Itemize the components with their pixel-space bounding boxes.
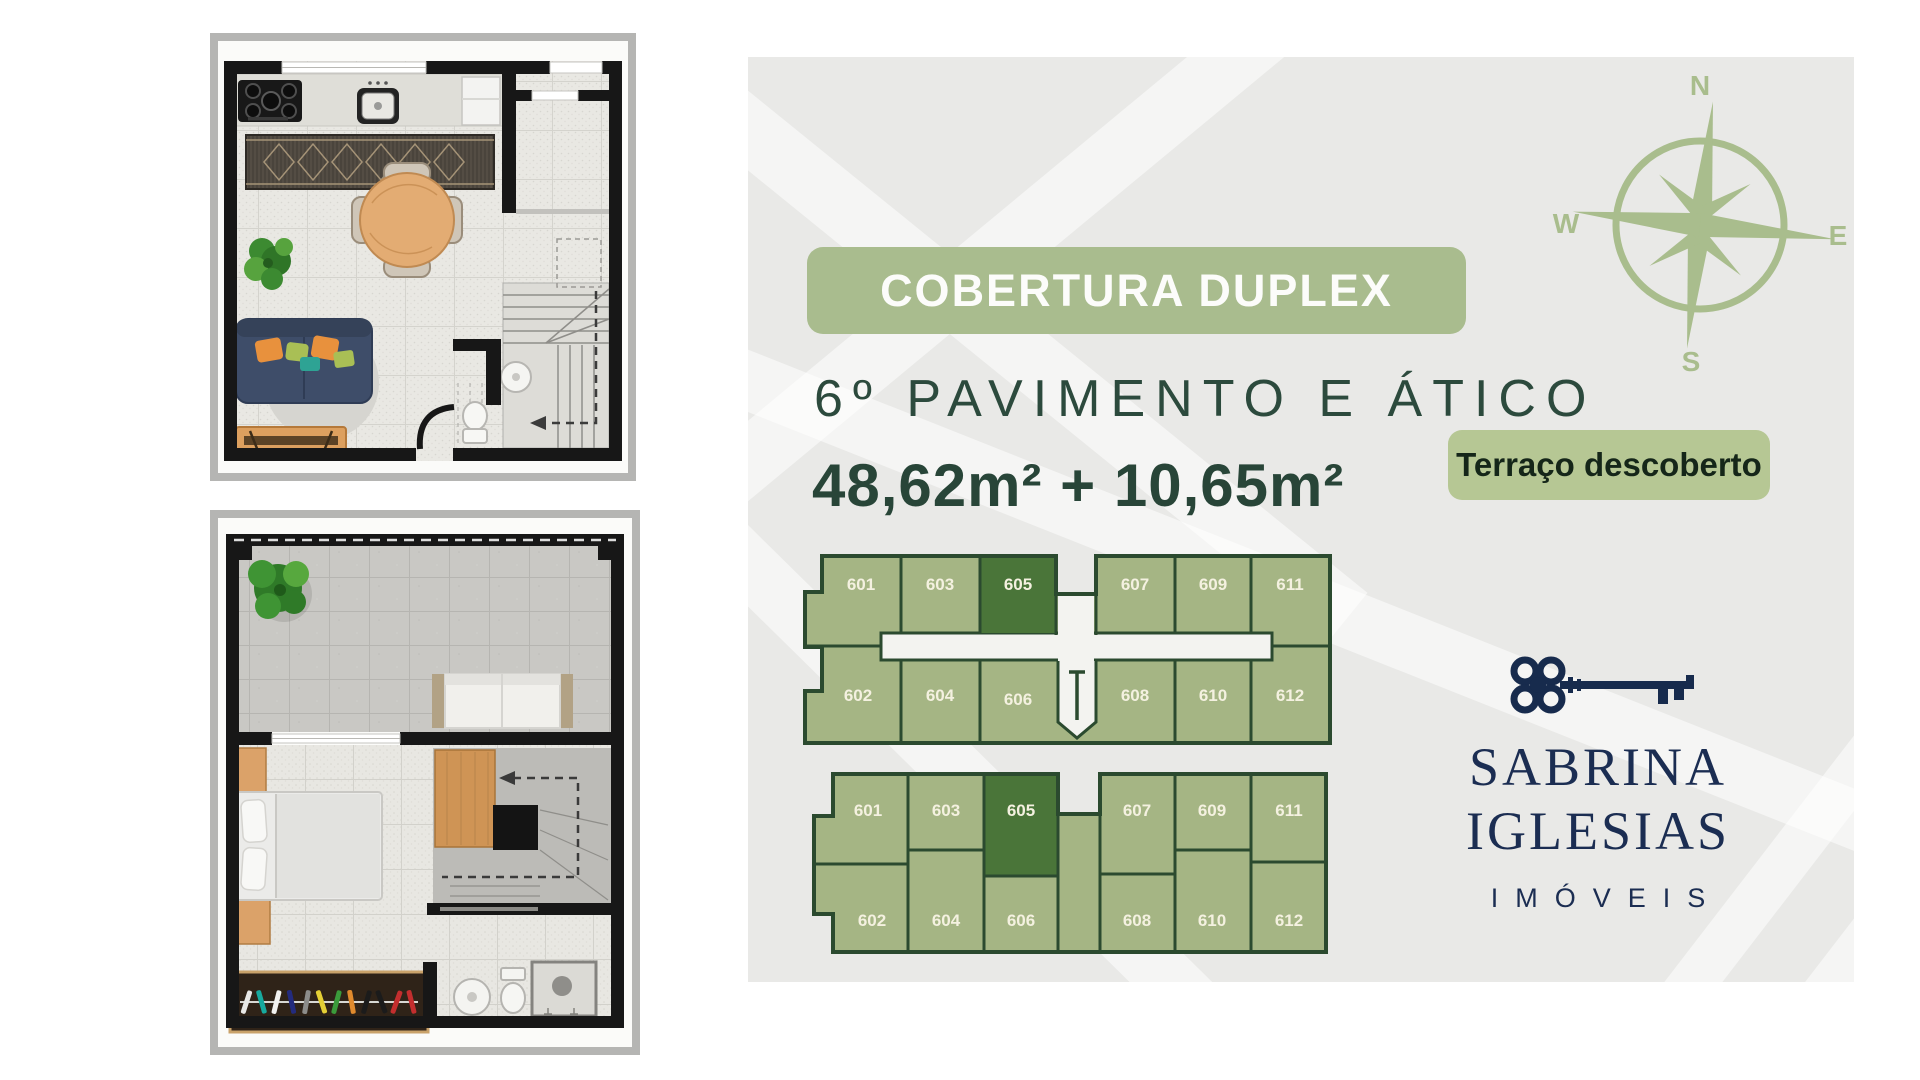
terrace-badge-label: Terraço descoberto (1456, 446, 1762, 484)
compass-west-label: W (1553, 208, 1580, 239)
brand-name-line2: IGLESIAS (1348, 799, 1848, 863)
area-text: 48,62m² + 10,65m² (812, 451, 1344, 520)
terrace-plant-icon (248, 560, 312, 622)
floorplan-atico-image (210, 510, 640, 1055)
unit-label: 603 (926, 575, 954, 594)
terrace-badge: Terraço descoberto (1448, 430, 1770, 500)
unit-label: 606 (1007, 911, 1035, 930)
brand-logo: SABRINA IGLESIAS IMÓVEIS (1348, 653, 1848, 914)
unit-label: 612 (1276, 686, 1304, 705)
unit-cell-highlight (984, 774, 1058, 876)
stove-icon (238, 80, 302, 122)
compass-star (1560, 88, 1848, 362)
unit-label: 609 (1198, 801, 1226, 820)
runner-rug (246, 135, 494, 189)
unit-label: 604 (926, 686, 955, 705)
keyplan-atico: 601 603 605 607 609 611 602 604 606 608 … (810, 771, 1330, 955)
unit-label: 611 (1275, 801, 1302, 820)
key-icon (1498, 653, 1698, 717)
flyer-canvas: N E S W COBERTURA DUPLEX 6º PAVIMENTO E … (0, 0, 1920, 1080)
unit-label: 610 (1199, 686, 1227, 705)
toilet-icon (463, 402, 487, 430)
floorplan-level6-image (210, 33, 636, 481)
unit-label: 609 (1199, 575, 1227, 594)
floor-subtitle: 6º PAVIMENTO E ÁTICO (814, 369, 1596, 429)
unit-label: 608 (1123, 911, 1151, 930)
compass-east-label: E (1829, 220, 1848, 251)
unit-label: 610 (1198, 911, 1226, 930)
unit-label: 606 (1004, 690, 1032, 709)
wood-landing (435, 750, 495, 847)
stairs-atico-plan (433, 748, 611, 903)
unit-label: 612 (1275, 911, 1303, 930)
unit-label: 605 (1007, 801, 1035, 820)
compass-north-label: N (1690, 73, 1710, 101)
compass-rose: N E S W (1548, 73, 1852, 377)
sofa-icon (236, 319, 372, 403)
stair-void (493, 805, 538, 850)
unit-label: 601 (847, 575, 875, 594)
unit-label: 608 (1121, 686, 1149, 705)
toilet-icon (501, 983, 525, 1013)
brand-tagline: IMÓVEIS (1348, 883, 1848, 914)
title-badge-label: COBERTURA DUPLEX (880, 265, 1393, 317)
fridge-icon (462, 77, 500, 125)
unit-label: 601 (854, 801, 882, 820)
unit-label: 604 (932, 911, 961, 930)
corridor-stub (1058, 596, 1094, 662)
unit-cell-highlight (980, 556, 1056, 633)
unit-label: 602 (844, 686, 872, 705)
unit-label: 611 (1276, 575, 1303, 594)
compass-south-label: S (1682, 346, 1701, 377)
keyplan-floor6: 601 603 605 607 609 611 602 604 606 608 … (800, 553, 1334, 747)
unit-label: 607 (1121, 575, 1149, 594)
unit-label: 607 (1123, 801, 1151, 820)
unit-label: 602 (858, 911, 886, 930)
info-panel: N E S W COBERTURA DUPLEX 6º PAVIMENTO E … (748, 57, 1854, 982)
unit-label: 603 (932, 801, 960, 820)
terrace-bench-icon (432, 674, 573, 728)
title-badge: COBERTURA DUPLEX (807, 247, 1466, 334)
unit-label: 605 (1004, 575, 1032, 594)
brand-name-line1: SABRINA (1348, 735, 1848, 799)
